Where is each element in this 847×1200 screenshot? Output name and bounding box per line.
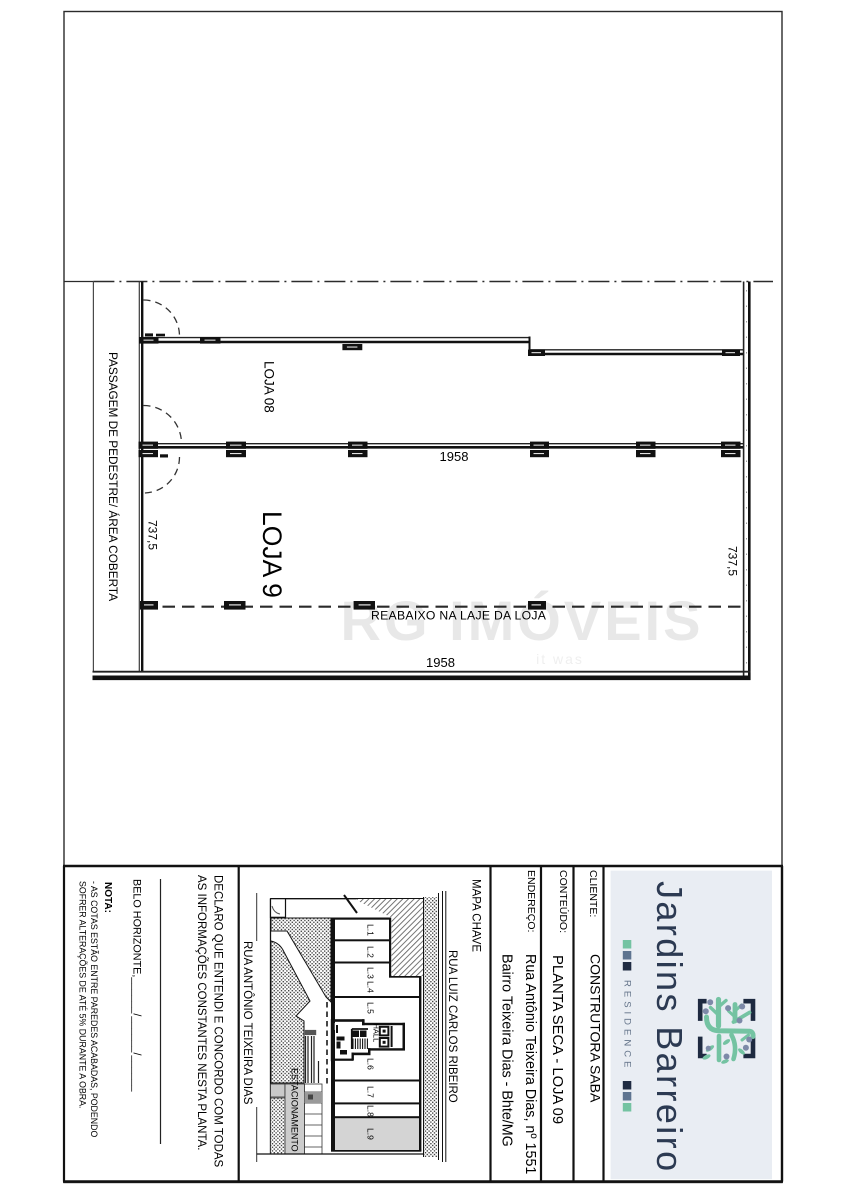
svg-text:L.9: L.9 [366,1128,376,1140]
svg-text:L.1: L.1 [366,924,376,936]
svg-text:1958: 1958 [426,655,455,670]
svg-text:CONSTRUTORA SABA: CONSTRUTORA SABA [588,954,604,1103]
svg-text:L.2: L.2 [366,946,376,958]
svg-text:737,5: 737,5 [726,546,740,576]
svg-text:Rua Antônio Teixeira Dias, nº: Rua Antônio Teixeira Dias, nº 1551 [522,954,538,1174]
svg-text:DECLARO QUE ENTENDI E CONCORDO: DECLARO QUE ENTENDI E CONCORDO COM TODAS [212,875,224,1168]
svg-text:RUA LUIZ CARLOS RIBEIRO: RUA LUIZ CARLOS RIBEIRO [446,950,458,1103]
svg-text:CONTEÚDO:: CONTEÚDO: [557,870,570,933]
svg-text:NOTA:: NOTA: [102,882,113,913]
svg-text:RUA ANTÔNIO TEIXEIRA DIAS: RUA ANTÔNIO TEIXEIRA DIAS [241,941,254,1105]
svg-text:LOJA 9: LOJA 9 [257,511,287,598]
svg-text:PASSAGEM DE PEDESTRE/ ÁREA COB: PASSAGEM DE PEDESTRE/ ÁREA COBERTA [106,352,120,601]
svg-text:BELO HORIZONTE,______/______/_: BELO HORIZONTE,______/______/______ [131,879,143,1092]
svg-text:AS INFORMAÇÕES CONSTANTES NEST: AS INFORMAÇÕES CONSTANTES NESTA PLANTA. [195,875,208,1150]
svg-text:L.8: L.8 [366,1105,376,1117]
svg-text:L.4: L.4 [366,981,376,993]
svg-text:737,5: 737,5 [146,520,160,550]
svg-text:LOJA 08: LOJA 08 [262,361,277,413]
svg-text:SOFRER ALTERAÇÕES DE ATÉ 5% DU: SOFRER ALTERAÇÕES DE ATÉ 5% DURANTE A OB… [78,881,88,1108]
svg-text:L.7: L.7 [366,1086,376,1098]
svg-text:PLANTA SECA - LOJA 09: PLANTA SECA - LOJA 09 [549,955,565,1124]
svg-text:ENDEREÇO:: ENDEREÇO: [525,870,537,932]
svg-text:HALL: HALL [372,1024,381,1043]
svg-text:Jardins Barreiro: Jardins Barreiro [649,881,690,1174]
svg-text:it was: it was [536,651,584,667]
svg-text:ESTACIONAMENTO: ESTACIONAMENTO [290,1068,300,1152]
svg-text:- AS COTAS ESTÃO ENTRE PAREDES: - AS COTAS ESTÃO ENTRE PAREDES ACABADAS,… [89,881,99,1137]
svg-text:L.5: L.5 [366,1002,376,1014]
svg-text:L.3: L.3 [366,967,376,979]
svg-text:CLIENTE:: CLIENTE: [587,870,599,917]
svg-text:1958: 1958 [440,449,469,464]
svg-text:MAPA CHAVE: MAPA CHAVE [470,879,482,952]
svg-text:REABAIXO NA LAJE DA LOJA: REABAIXO NA LAJE DA LOJA [371,609,547,623]
svg-text:L.6: L.6 [366,1058,376,1070]
svg-text:RESIDENCE: RESIDENCE [622,980,633,1071]
svg-text:Bairro Teixeira Dias - Bhte/MG: Bairro Teixeira Dias - Bhte/MG [499,954,515,1147]
